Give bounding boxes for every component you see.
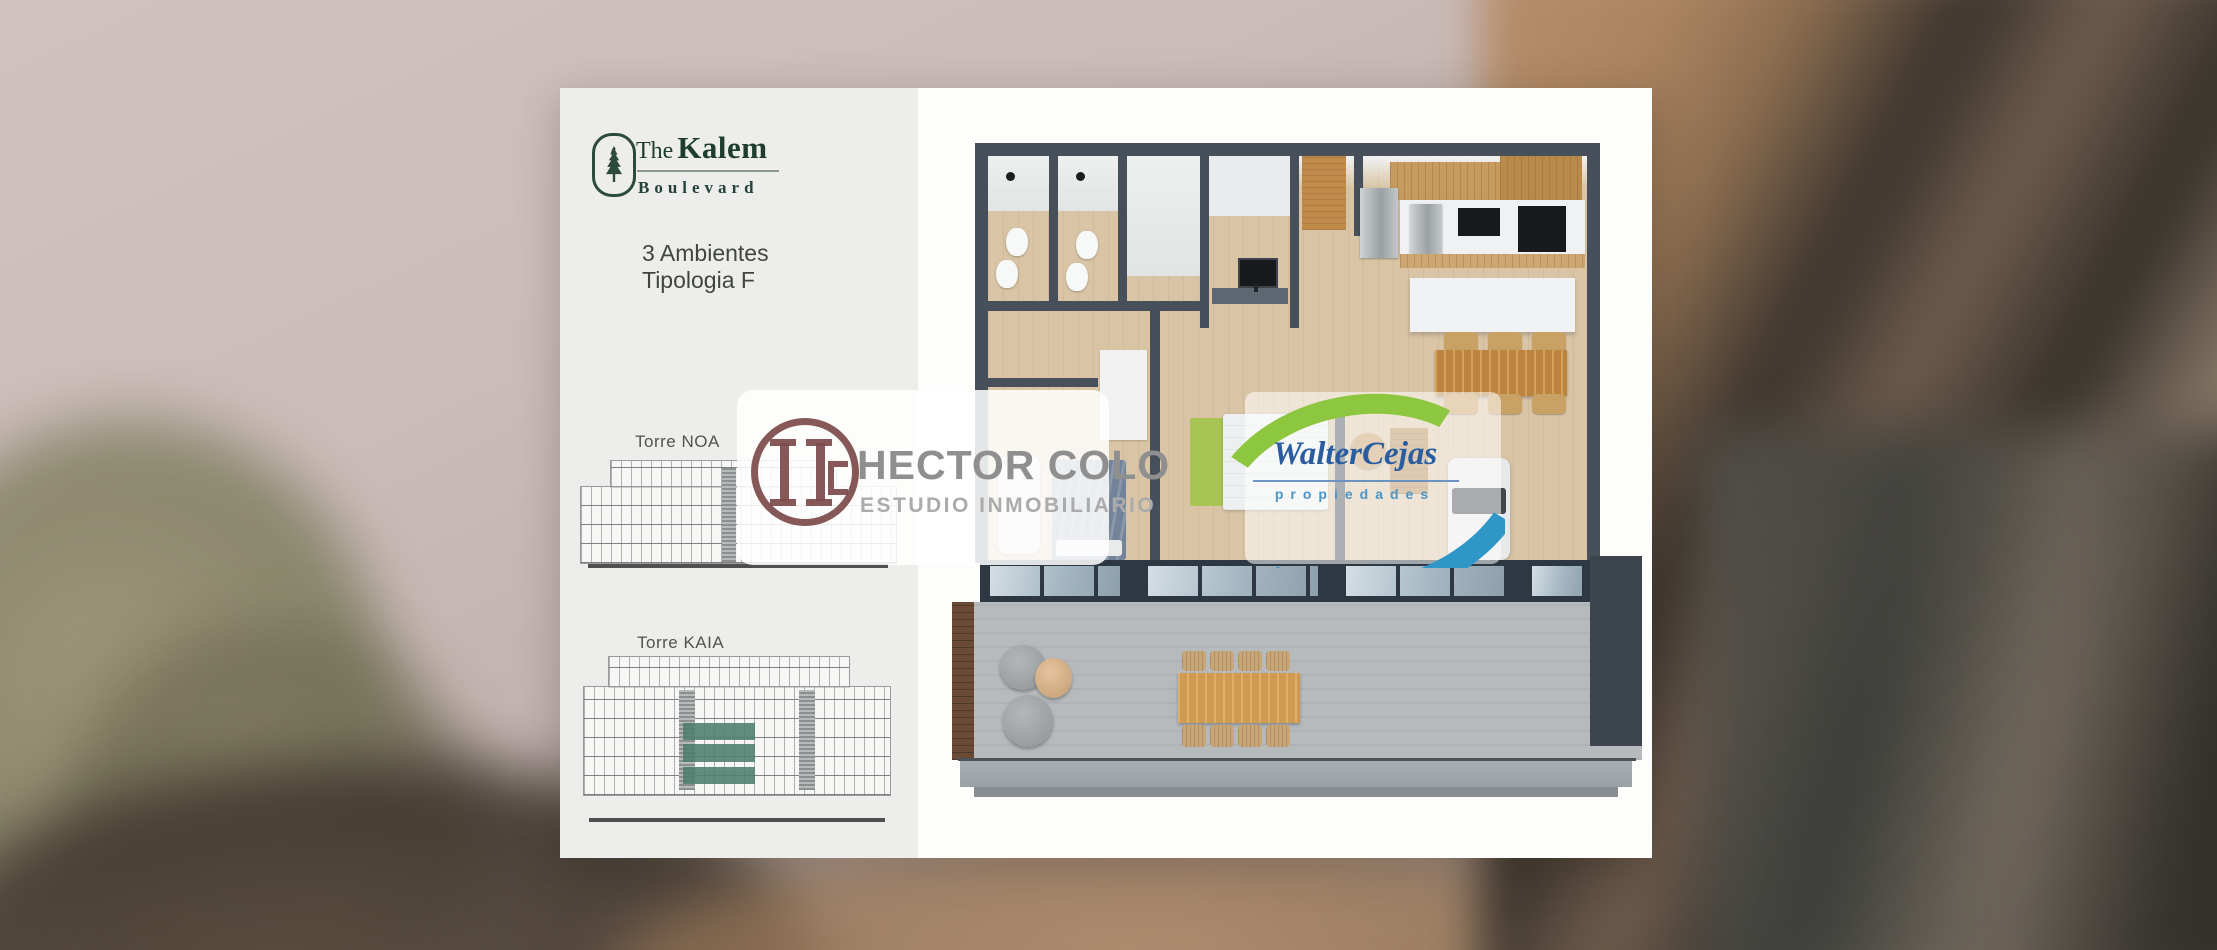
outdoor-chair <box>1238 651 1262 671</box>
balcony-slab-front <box>974 787 1618 797</box>
glass-door-panel <box>990 566 1120 596</box>
outdoor-chair <box>1210 651 1234 671</box>
pouf <box>1035 658 1072 698</box>
balcony-side-wall <box>1590 556 1642 746</box>
listing-image: The Kalem Boulevard 3 Ambientes Tipologi… <box>0 0 2217 950</box>
brand-logo <box>592 133 636 197</box>
tower-noa-label: Torre NOA <box>635 432 720 452</box>
monitor-stand <box>1254 284 1258 292</box>
hector-tagline: ESTUDIO INMOBILIARIO <box>860 494 1156 518</box>
kaia-highlight-floor <box>683 744 755 762</box>
glass-door-panel <box>1532 566 1586 596</box>
cooktop <box>1458 208 1500 236</box>
study-wall <box>1209 156 1290 216</box>
walter-blue-swoosh <box>1205 386 1505 568</box>
bathroom-1-wall <box>988 156 1049 211</box>
bidet <box>1066 263 1088 291</box>
dishwasher <box>1410 204 1442 254</box>
dining-chair <box>1532 394 1566 414</box>
dining-chair <box>1532 332 1566 352</box>
dining-chair <box>1444 332 1478 352</box>
wall <box>1118 156 1127 306</box>
outdoor-chair <box>1182 725 1206 747</box>
hector-logo-icon <box>751 418 859 526</box>
bidet <box>996 260 1018 288</box>
unit-rooms: 3 Ambientes <box>642 240 769 267</box>
pendant-light <box>1006 172 1015 181</box>
brand-subtitle: Boulevard <box>638 178 759 198</box>
hector-name: HECTOR COLO <box>857 442 1170 489</box>
glass-door-panel <box>1346 566 1506 596</box>
background-building-windows <box>1700 430 2217 950</box>
wall <box>988 378 1098 387</box>
toilet <box>1076 231 1098 259</box>
desk-monitor <box>1238 258 1278 288</box>
walter-tagline: propiedades <box>1235 486 1475 502</box>
pendant-light <box>1076 172 1085 181</box>
kaia-highlight-floor <box>683 767 755 784</box>
walter-name: WalterCejas <box>1235 436 1475 473</box>
kitchen-island <box>1410 278 1575 332</box>
balcony-wood-divider <box>952 602 974 760</box>
outdoor-chair <box>1266 651 1290 671</box>
brand-prefix: The <box>636 138 673 164</box>
balcony-slab <box>960 761 1632 787</box>
tower-kaia-elevation <box>583 656 889 828</box>
pine-tree-icon <box>604 146 624 182</box>
oven <box>1518 206 1566 252</box>
wall <box>988 301 1209 311</box>
brand-divider <box>637 170 779 172</box>
tower-kaia-label: Torre KAIA <box>637 633 724 653</box>
bathroom-2-wall <box>1058 156 1118 211</box>
kaia-highlight-floor <box>683 723 755 740</box>
entry-door-floor <box>1302 156 1346 230</box>
shower-room <box>1127 156 1200 276</box>
kitchen-cabinet-box <box>1500 156 1582 202</box>
toilet <box>1006 228 1028 256</box>
hector-watermark: HECTOR COLO ESTUDIO INMOBILIARIO <box>737 390 1109 565</box>
dining-chair <box>1488 332 1522 352</box>
wall <box>1049 156 1058 306</box>
unit-type: Tipologia F <box>642 267 769 294</box>
pouf <box>1003 695 1053 747</box>
outdoor-chair <box>1210 725 1234 747</box>
glass-door-panel <box>1148 566 1318 596</box>
unit-info: 3 Ambientes Tipologia F <box>642 240 769 294</box>
brand-name: Kalem <box>677 130 767 165</box>
brand-title: The Kalem <box>636 130 768 166</box>
desk <box>1212 288 1288 304</box>
wall <box>1290 156 1299 328</box>
outdoor-chair <box>1238 725 1262 747</box>
outdoor-chair <box>1182 651 1206 671</box>
refrigerator <box>1360 188 1398 258</box>
counter-wood-edge <box>1400 254 1585 268</box>
outdoor-chair <box>1266 725 1290 747</box>
wall <box>1150 311 1160 561</box>
outdoor-table <box>1178 673 1300 723</box>
walter-watermark: WalterCejas propiedades <box>1205 386 1505 568</box>
